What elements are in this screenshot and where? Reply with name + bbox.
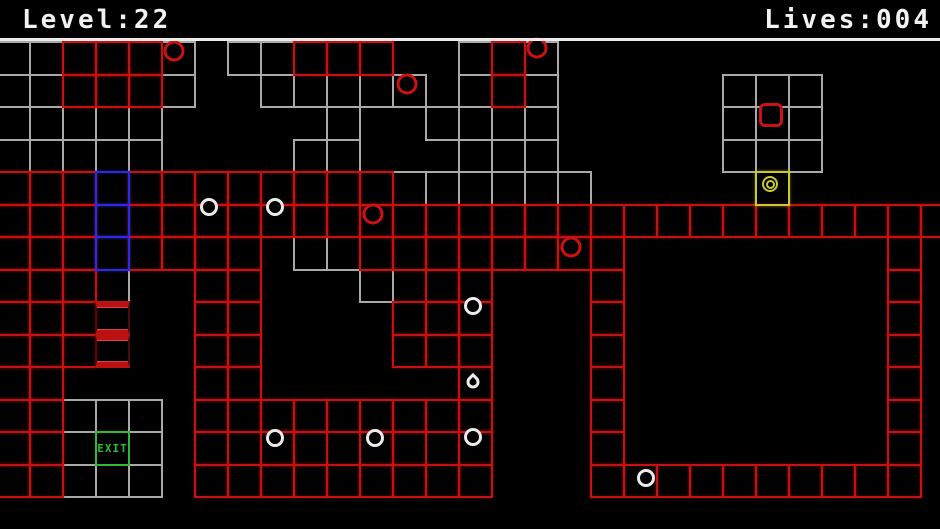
grid-cell-red bbox=[425, 334, 460, 369]
grid-cell-gray bbox=[29, 41, 64, 76]
white-ring-icon bbox=[366, 429, 384, 447]
grid-cell-red bbox=[62, 236, 97, 271]
grid-cell-red bbox=[293, 171, 328, 206]
stripe-cell bbox=[95, 301, 130, 336]
grid-cell-red bbox=[128, 41, 163, 76]
grid-cell-red bbox=[0, 301, 31, 336]
grid-cell-red bbox=[194, 269, 229, 304]
white-ring-icon bbox=[266, 198, 284, 216]
blue-cell bbox=[95, 171, 130, 206]
grid-cell-red bbox=[161, 171, 196, 206]
grid-cell-gray bbox=[29, 74, 64, 109]
grid-cell-gray bbox=[227, 41, 262, 76]
grid-cell-red bbox=[0, 236, 31, 271]
game-screen: Level:22 Lives:004 EXIT bbox=[0, 0, 940, 529]
grid-cell-gray bbox=[326, 74, 361, 109]
grid-cell-red bbox=[227, 366, 262, 401]
grid-cell-red bbox=[326, 41, 361, 76]
grid-cell-red bbox=[161, 236, 196, 271]
grid-cell-gray bbox=[458, 74, 493, 109]
grid-cell-gray bbox=[524, 74, 559, 109]
grid-cell-red bbox=[326, 204, 361, 239]
grid-cell-red bbox=[293, 431, 328, 466]
grid-cell-red bbox=[62, 334, 97, 369]
grid-cell-red bbox=[0, 399, 31, 434]
grid-cell-gray bbox=[392, 171, 427, 206]
grid-cell-red bbox=[29, 171, 64, 206]
grid-cell-gray bbox=[95, 139, 130, 174]
grid-cell-red bbox=[821, 464, 856, 499]
grid-cell-red bbox=[62, 171, 97, 206]
grid-cell-gray bbox=[29, 106, 64, 141]
grid-cell-gray bbox=[161, 74, 196, 109]
grid-cell-red bbox=[425, 464, 460, 499]
grid-cell-red bbox=[0, 204, 31, 239]
grid-cell-red bbox=[29, 204, 64, 239]
grid-cell-red bbox=[392, 204, 427, 239]
grid-cell-red bbox=[425, 399, 460, 434]
grid-cell-red bbox=[887, 431, 922, 466]
grid-cell-red bbox=[194, 431, 229, 466]
grid-cell-red bbox=[524, 204, 559, 239]
grid-cell-red bbox=[29, 431, 64, 466]
grid-cell-red bbox=[458, 204, 493, 239]
grid-cell-red bbox=[62, 74, 97, 109]
grid-cell-red bbox=[887, 464, 922, 499]
grid-cell-red bbox=[590, 431, 625, 466]
grid-cell-gray bbox=[788, 106, 823, 141]
grid-cell-red bbox=[524, 236, 559, 271]
hud-divider bbox=[0, 38, 940, 41]
grid-cell-gray bbox=[491, 106, 526, 141]
grid-cell-red bbox=[293, 464, 328, 499]
grid-cell-red bbox=[227, 171, 262, 206]
grid-cell-red bbox=[689, 204, 724, 239]
grid-cell-red bbox=[491, 74, 526, 109]
yellow-target-icon bbox=[762, 176, 778, 192]
grid-cell-gray bbox=[293, 74, 328, 109]
grid-cell-gray bbox=[0, 106, 31, 141]
grid-cell-red bbox=[887, 399, 922, 434]
grid-cell-red bbox=[227, 301, 262, 336]
grid-cell-gray bbox=[128, 139, 163, 174]
grid-cell-red bbox=[491, 236, 526, 271]
grid-cell-red bbox=[194, 301, 229, 336]
grid-cell-gray bbox=[425, 171, 460, 206]
grid-cell-red bbox=[755, 204, 790, 239]
red-ring-icon bbox=[397, 74, 418, 95]
grid-cell-red bbox=[293, 204, 328, 239]
grid-cell-red bbox=[260, 464, 295, 499]
grid-cell-gray bbox=[293, 236, 328, 271]
grid-cell-gray bbox=[557, 171, 592, 206]
grid-cell-red bbox=[29, 366, 64, 401]
grid-cell-gray bbox=[458, 171, 493, 206]
white-ring-icon bbox=[464, 297, 482, 315]
grid-cell-gray bbox=[62, 464, 97, 499]
grid-cell-red bbox=[293, 399, 328, 434]
grid-cell-gray bbox=[0, 74, 31, 109]
grid-cell-gray bbox=[128, 464, 163, 499]
grid-cell-red bbox=[887, 334, 922, 369]
grid-cell-bright bbox=[227, 431, 262, 466]
grid-cell-red bbox=[755, 464, 790, 499]
grid-cell-red bbox=[194, 236, 229, 271]
grid-cell-gray bbox=[722, 106, 757, 141]
grid-cell-red bbox=[194, 366, 229, 401]
game-board[interactable]: EXIT bbox=[0, 0, 940, 529]
grid-cell-red bbox=[722, 464, 757, 499]
grid-cell-gray bbox=[0, 139, 31, 174]
grid-cell-gray bbox=[95, 269, 130, 304]
grid-cell-red bbox=[227, 204, 262, 239]
grid-cell-red bbox=[128, 74, 163, 109]
grid-cell-red bbox=[29, 464, 64, 499]
grid-cell-gray bbox=[128, 399, 163, 434]
grid-cell-red bbox=[0, 464, 31, 499]
grid-cell-red bbox=[392, 464, 427, 499]
white-ring-icon bbox=[200, 198, 218, 216]
grid-cell-red bbox=[854, 464, 889, 499]
grid-cell-gray bbox=[62, 106, 97, 141]
grid-cell-red bbox=[491, 41, 526, 76]
grid-cell-gray bbox=[722, 74, 757, 109]
grid-cell-gray bbox=[95, 464, 130, 499]
grid-cell-red bbox=[689, 464, 724, 499]
white-ring-icon bbox=[266, 429, 284, 447]
grid-cell-gray bbox=[458, 106, 493, 141]
grid-cell-gray bbox=[458, 41, 493, 76]
grid-cell-red bbox=[0, 334, 31, 369]
grid-cell-gray bbox=[524, 171, 559, 206]
grid-cell-red bbox=[458, 236, 493, 271]
grid-cell-gray bbox=[128, 431, 163, 466]
grid-cell-red bbox=[227, 334, 262, 369]
grid-cell-red bbox=[590, 366, 625, 401]
grid-cell-gray bbox=[425, 106, 460, 141]
grid-cell-red bbox=[128, 171, 163, 206]
grid-cell-red bbox=[788, 464, 823, 499]
blue-cell bbox=[95, 236, 130, 271]
grid-cell-red bbox=[227, 269, 262, 304]
grid-cell-red bbox=[854, 204, 889, 239]
grid-cell-gray bbox=[755, 139, 790, 174]
grid-cell-gray bbox=[62, 139, 97, 174]
grid-cell-red bbox=[392, 236, 427, 271]
grid-cell-gray bbox=[326, 106, 361, 141]
grid-cell-red bbox=[887, 204, 922, 239]
grid-cell-red bbox=[590, 399, 625, 434]
grid-cell-red bbox=[458, 334, 493, 369]
white-ring-icon bbox=[464, 428, 482, 446]
grid-cell-red bbox=[590, 334, 625, 369]
grid-cell-bright bbox=[326, 431, 361, 466]
grid-cell-red bbox=[887, 269, 922, 304]
red-square-icon bbox=[759, 103, 783, 127]
grid-cell-gray bbox=[62, 431, 97, 466]
red-ring-icon bbox=[363, 204, 384, 225]
grid-cell-red bbox=[29, 334, 64, 369]
grid-cell-red bbox=[425, 301, 460, 336]
exit-cell: EXIT bbox=[95, 431, 130, 466]
grid-cell-gray bbox=[260, 41, 295, 76]
grid-cell-red bbox=[425, 269, 460, 304]
grid-cell-red bbox=[29, 301, 64, 336]
grid-cell-gray bbox=[293, 139, 328, 174]
grid-cell-red bbox=[656, 464, 691, 499]
grid-cell-red bbox=[128, 236, 163, 271]
grid-cell-red bbox=[0, 431, 31, 466]
stripe-cell bbox=[95, 334, 130, 369]
grid-cell-red bbox=[359, 236, 394, 271]
grid-cell-red bbox=[326, 399, 361, 434]
grid-cell-red bbox=[920, 204, 940, 239]
grid-cell-gray bbox=[458, 139, 493, 174]
grid-cell-red bbox=[623, 204, 658, 239]
grid-cell-red bbox=[326, 464, 361, 499]
grid-cell-red bbox=[458, 464, 493, 499]
grid-cell-red bbox=[0, 171, 31, 206]
grid-cell-red bbox=[392, 301, 427, 336]
grid-cell-red bbox=[821, 204, 856, 239]
grid-cell-red bbox=[194, 464, 229, 499]
grid-cell-red bbox=[590, 204, 625, 239]
grid-cell-red bbox=[425, 204, 460, 239]
grid-cell-red bbox=[227, 399, 262, 434]
grid-cell-gray bbox=[95, 399, 130, 434]
grid-cell-red bbox=[29, 399, 64, 434]
grid-cell-red bbox=[0, 269, 31, 304]
grid-cell-red bbox=[887, 301, 922, 336]
grid-cell-red bbox=[260, 399, 295, 434]
exit-label: EXIT bbox=[97, 442, 128, 455]
grid-cell-red bbox=[359, 464, 394, 499]
grid-cell-red bbox=[227, 236, 262, 271]
grid-cell-red bbox=[128, 204, 163, 239]
grid-cell-gray bbox=[359, 74, 394, 109]
grid-cell-red bbox=[590, 236, 625, 271]
grid-cell-red bbox=[359, 399, 394, 434]
grid-cell-red bbox=[227, 464, 262, 499]
grid-cell-red bbox=[359, 41, 394, 76]
grid-cell-gray bbox=[95, 106, 130, 141]
grid-cell-red bbox=[557, 204, 592, 239]
grid-cell-red bbox=[359, 171, 394, 206]
grid-cell-gray bbox=[524, 106, 559, 141]
grid-cell-gray bbox=[788, 74, 823, 109]
grid-cell-red bbox=[656, 204, 691, 239]
grid-cell-red bbox=[293, 41, 328, 76]
grid-cell-gray bbox=[359, 269, 394, 304]
grid-cell-gray bbox=[491, 171, 526, 206]
grid-cell-gray bbox=[326, 139, 361, 174]
grid-cell-red bbox=[62, 41, 97, 76]
grid-cell-red bbox=[62, 301, 97, 336]
grid-cell-gray bbox=[722, 139, 757, 174]
grid-cell-red bbox=[392, 431, 427, 466]
grid-cell-red bbox=[194, 399, 229, 434]
grid-cell-gray bbox=[260, 74, 295, 109]
grid-cell-red bbox=[29, 236, 64, 271]
red-ring-icon bbox=[164, 41, 185, 62]
grid-cell-gray bbox=[491, 139, 526, 174]
grid-cell-red bbox=[590, 269, 625, 304]
grid-cell-gray bbox=[326, 236, 361, 271]
grid-cell-red bbox=[392, 399, 427, 434]
grid-cell-gray bbox=[0, 41, 31, 76]
grid-cell-red bbox=[590, 464, 625, 499]
grid-cell-gray bbox=[524, 139, 559, 174]
grid-cell-gray bbox=[29, 139, 64, 174]
grid-cell-red bbox=[161, 204, 196, 239]
grid-cell-red bbox=[62, 204, 97, 239]
grid-cell-red bbox=[887, 236, 922, 271]
grid-cell-red bbox=[887, 366, 922, 401]
grid-cell-red bbox=[194, 334, 229, 369]
grid-cell-red bbox=[95, 74, 130, 109]
grid-cell-bright bbox=[425, 431, 460, 466]
grid-cell-red bbox=[0, 366, 31, 401]
grid-cell-red bbox=[722, 204, 757, 239]
grid-cell-red bbox=[95, 41, 130, 76]
blue-cell bbox=[95, 204, 130, 239]
red-ring-icon bbox=[561, 237, 582, 258]
grid-cell-red bbox=[590, 301, 625, 336]
grid-cell-red bbox=[788, 204, 823, 239]
grid-cell-gray bbox=[128, 106, 163, 141]
grid-cell-gray bbox=[62, 399, 97, 434]
grid-cell-gray bbox=[788, 139, 823, 174]
grid-cell-red bbox=[326, 171, 361, 206]
white-ring-icon bbox=[637, 469, 655, 487]
grid-cell-red bbox=[491, 204, 526, 239]
grid-cell-red bbox=[62, 269, 97, 304]
grid-cell-red bbox=[392, 334, 427, 369]
grid-cell-red bbox=[425, 236, 460, 271]
grid-cell-red bbox=[29, 269, 64, 304]
